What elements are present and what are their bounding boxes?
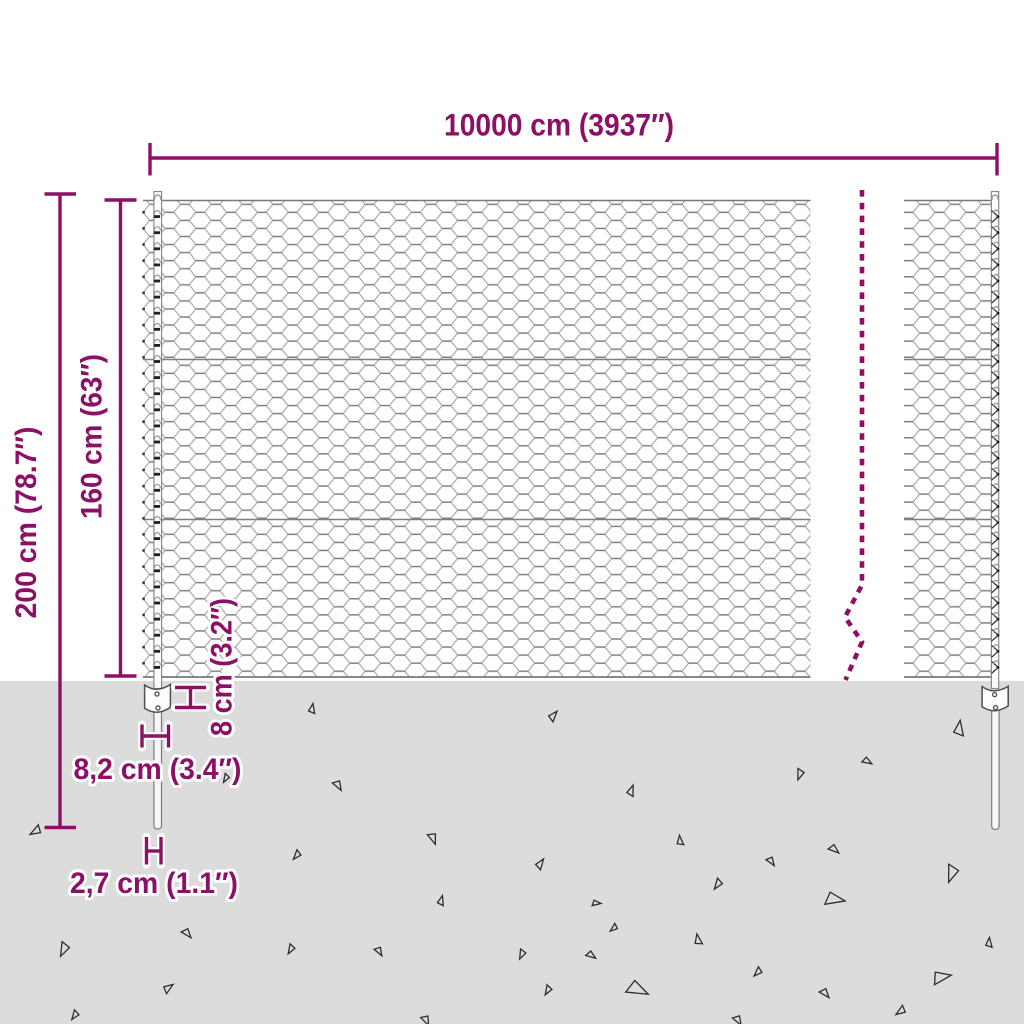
svg-text:10000 cm (3937″): 10000 cm (3937″) (444, 107, 674, 143)
svg-text:2,7 cm (1.1″): 2,7 cm (1.1″) (70, 867, 238, 900)
svg-text:8,2 cm (3.4″): 8,2 cm (3.4″) (74, 753, 242, 786)
svg-text:160 cm (63″): 160 cm (63″) (76, 354, 109, 519)
svg-text:200 cm (78.7″): 200 cm (78.7″) (10, 427, 43, 619)
svg-text:8 cm (3.2″): 8 cm (3.2″) (206, 598, 239, 736)
